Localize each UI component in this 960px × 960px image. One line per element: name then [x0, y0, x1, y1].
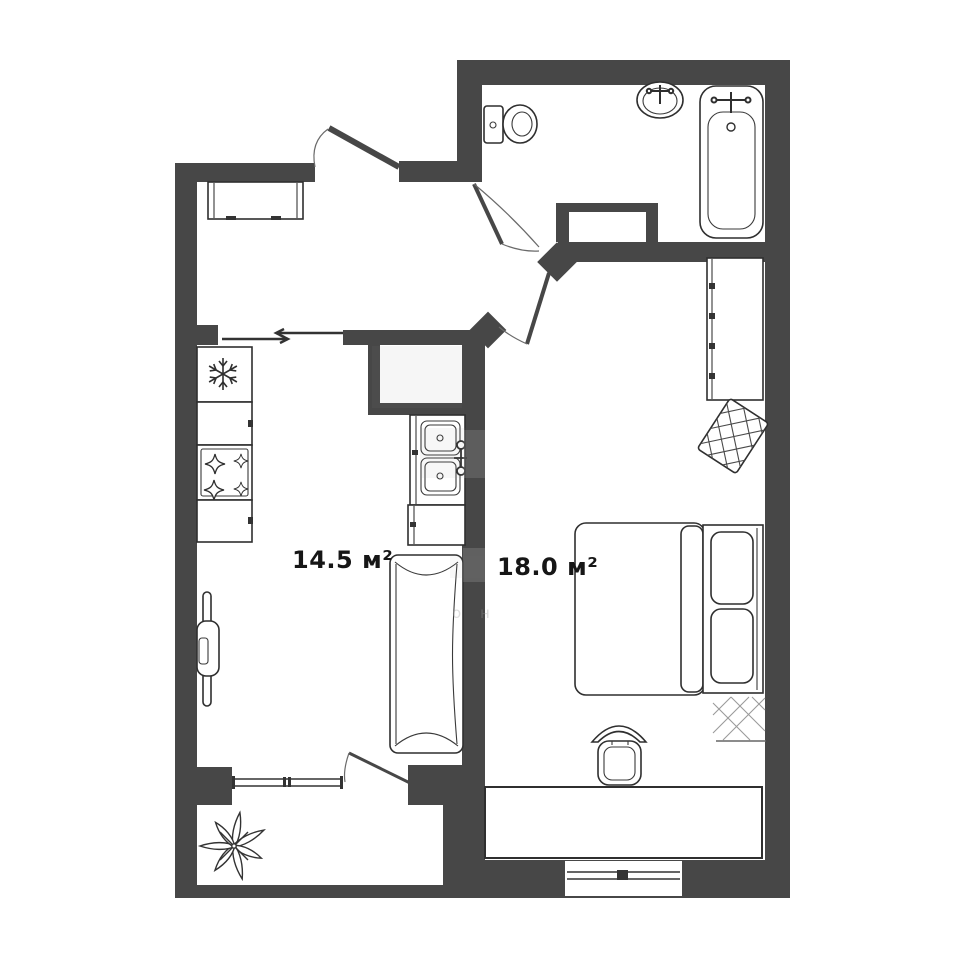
floor-plan: о н 14.5 м² 18.0 м²	[0, 0, 960, 960]
washbasin	[637, 82, 683, 118]
pillow	[711, 609, 753, 683]
bedroom-area-label: 18.0 м²	[497, 553, 598, 581]
wall-entry-block	[399, 161, 457, 182]
toilet-tank	[484, 106, 503, 143]
hallway-cabinet	[208, 182, 303, 220]
stove	[197, 445, 252, 500]
balcony-door	[345, 753, 411, 783]
chair	[592, 726, 646, 785]
kitchen-area-label: 14.5 м²	[292, 546, 393, 574]
wall-kitchen-entry-stub	[197, 325, 218, 345]
balcony-window	[232, 776, 343, 789]
chair-back	[592, 726, 646, 742]
floor-plan-drawing: о н	[0, 0, 960, 960]
plant	[200, 812, 266, 880]
wall-hall-top	[175, 163, 315, 182]
wall-kitchen-top	[343, 330, 465, 345]
bathtub	[700, 86, 763, 238]
rug-hatched	[713, 697, 766, 741]
kitchen-counter-lower	[197, 500, 253, 542]
bedroom-door	[499, 273, 549, 344]
rug-diamond	[697, 398, 768, 473]
bathroom-door	[474, 184, 539, 251]
wardrobe	[707, 258, 763, 400]
balcony-door-leaf	[349, 753, 410, 783]
bedroom-window	[565, 861, 682, 896]
desk	[485, 787, 762, 858]
wall-bottom-balcony	[175, 885, 445, 898]
wall-right	[765, 60, 790, 898]
kitchen-base-cabinet	[408, 505, 465, 545]
fridge	[197, 347, 252, 402]
bedroom-door-leaf	[527, 273, 549, 344]
entrance-door	[314, 128, 399, 167]
window-latch	[617, 870, 628, 880]
entrance-door-leaf	[329, 128, 399, 167]
pillow	[711, 532, 753, 604]
sliding-door-arrows	[222, 329, 343, 343]
kitchen-counter-upper	[197, 402, 253, 445]
sofa	[390, 555, 463, 753]
double-bed	[575, 523, 763, 695]
wall-balcony-left-block	[177, 767, 232, 805]
bed-blanket-edge	[681, 526, 703, 692]
watermark-letters: о н	[452, 604, 497, 622]
vent-shaft-right	[646, 203, 658, 242]
vent-shaft-top	[556, 203, 658, 212]
toilet	[484, 105, 537, 143]
bathroom-door-leaf	[474, 184, 502, 244]
wall-bath-top	[457, 60, 790, 85]
wall-balcony-right-block	[408, 765, 485, 805]
folding-table	[197, 592, 219, 706]
